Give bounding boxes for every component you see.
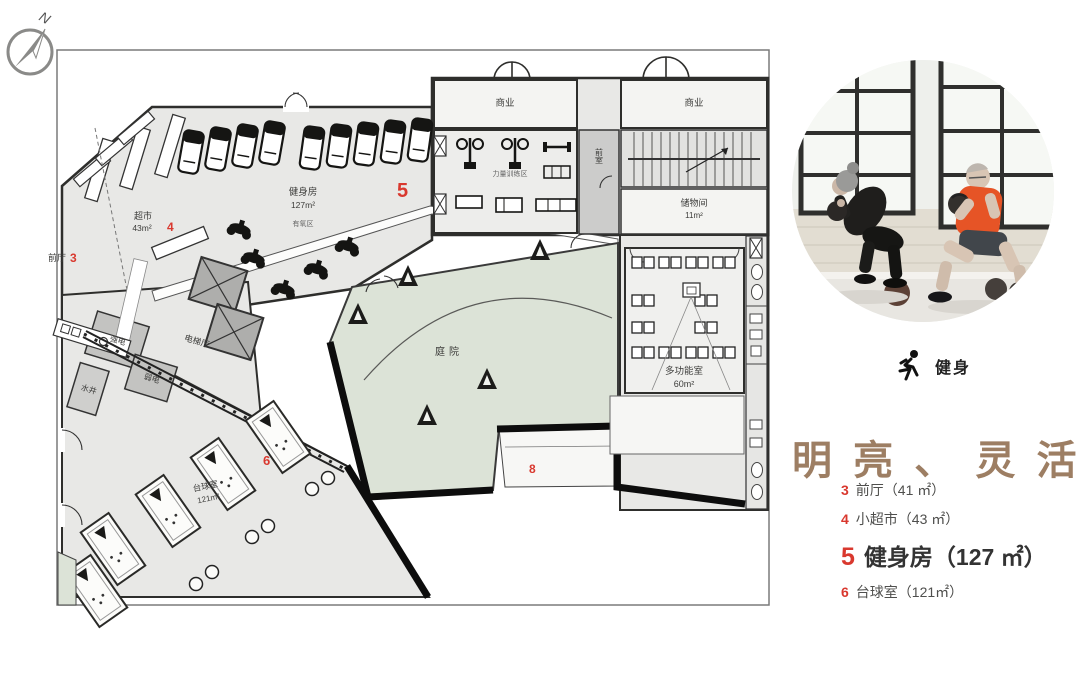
label-gym: 健身房	[289, 186, 318, 198]
label-commercial-1: 商业	[495, 97, 514, 109]
label-commercial-2: 商业	[684, 97, 703, 109]
plan-number-6: 6	[263, 453, 270, 468]
plan-number-3: 3	[70, 251, 77, 265]
multifunction-room	[610, 248, 744, 454]
legend-item: 4 小超市（43 ㎡）	[841, 509, 1047, 529]
room-strength	[434, 130, 577, 233]
label-gym-area: 127m²	[291, 200, 315, 210]
label-strength-zone: 力量训练区	[493, 169, 528, 178]
fitness-tag-label: 健身	[935, 354, 971, 378]
compass-n-label: N	[37, 8, 55, 27]
label-storage-area: 11m²	[685, 211, 703, 220]
compass-north-icon: N	[8, 8, 54, 74]
green-patch	[58, 552, 76, 605]
photo-content	[791, 59, 1055, 323]
legend-num: 6	[841, 584, 849, 600]
label-vestibule: 前室	[595, 147, 604, 164]
legend-item-highlight: 5 健身房（127 ㎡）	[841, 538, 1047, 572]
plan-number-4: 4	[167, 220, 174, 234]
legend-text: 前厅（41 ㎡）	[856, 480, 945, 500]
fitness-photo	[791, 59, 1055, 323]
legend-text: 健身房（127 ㎡）	[864, 538, 1047, 572]
runner-icon	[893, 349, 925, 383]
page-title: 明 亮 、 灵 活	[792, 428, 1080, 486]
legend-num: 4	[841, 511, 849, 527]
room-vestibule	[579, 130, 619, 234]
walkway	[499, 428, 618, 487]
slide: 商业 商业 力量训练区 前室 储物间 11m² 多功能室 60m² 超市 43m…	[0, 0, 1080, 698]
fitness-tag: 健身	[893, 349, 971, 383]
label-gym-zone: 有氧区	[293, 219, 314, 228]
legend-num: 3	[841, 482, 849, 498]
label-multifunction: 多功能室	[665, 365, 703, 377]
door-gap	[59, 503, 65, 527]
label-courtyard: 庭院	[435, 345, 463, 358]
legend-item: 3 前厅（41 ㎡）	[841, 480, 1047, 500]
label-multifunction-area: 60m²	[674, 379, 695, 389]
plan-number-8: 8	[529, 462, 536, 476]
label-supermarket-area: 43m²	[132, 223, 152, 233]
legend-text: 台球室（121㎡）	[856, 582, 963, 602]
label-front-hall: 前厅	[48, 252, 66, 263]
wc-corridor	[746, 236, 767, 509]
projector	[683, 283, 700, 297]
label-storage: 储物间	[680, 197, 707, 208]
label-supermarket: 超市	[134, 210, 152, 221]
legend: 3 前厅（41 ㎡） 4 小超市（43 ㎡） 5 健身房（127 ㎡） 6 台球…	[841, 480, 1047, 611]
plan-number-5: 5	[397, 180, 408, 202]
legend-text: 小超市（43 ㎡）	[856, 509, 959, 529]
door-gap	[59, 428, 65, 452]
legend-num: 5	[841, 543, 855, 572]
floor	[791, 279, 1055, 323]
door-gap	[283, 102, 309, 112]
legend-item: 6 台球室（121㎡）	[841, 582, 1047, 602]
